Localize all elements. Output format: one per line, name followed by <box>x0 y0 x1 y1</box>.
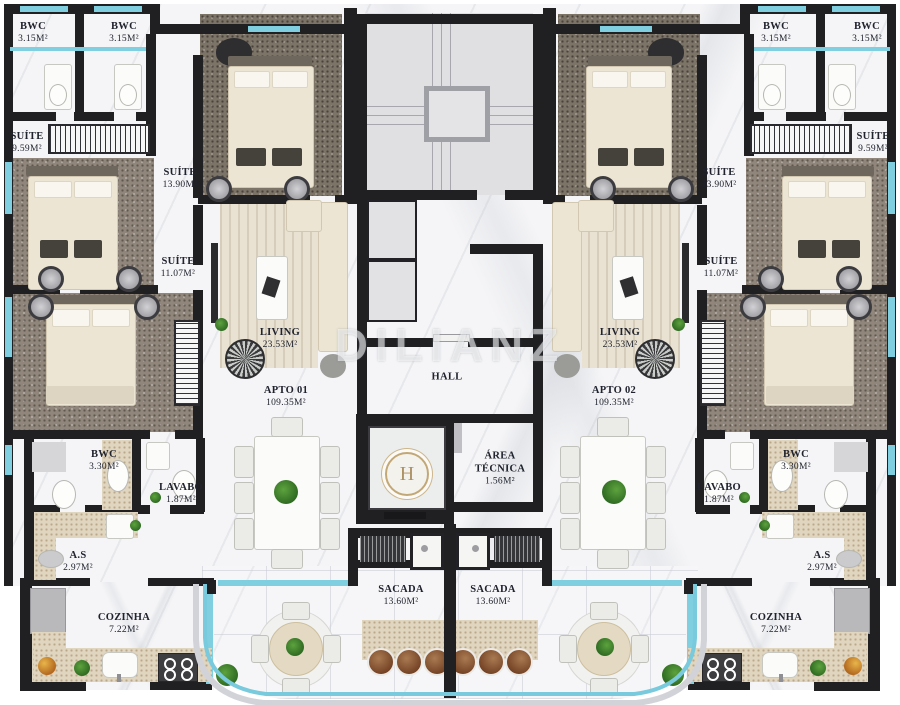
room-label-hall: HALL <box>410 372 484 385</box>
room-label-bwc-top-left-1: BWC3.15M² <box>0 21 70 45</box>
room-label-sacada-right: SACADA13.60M² <box>463 584 523 608</box>
room-label-living-left: LIVING23.53M² <box>243 327 317 351</box>
room-label-as-right: A.S2.97M² <box>785 550 859 574</box>
room-label-bwc-mid-right: BWC3.30M² <box>759 449 833 473</box>
room-label-area-tecnica: ÁREA TÉCNICA1.56M² <box>470 450 530 487</box>
room-label-bwc-mid-left: BWC3.30M² <box>67 449 141 473</box>
room-label-bwc-top-right-2: BWC3.15M² <box>830 21 900 45</box>
room-label-apto-02: APTO 02109.35M² <box>577 385 651 409</box>
room-label-apto-01: APTO 01109.35M² <box>249 385 323 409</box>
room-label-suite-1390-right: SUÍTE13.90M² <box>682 167 756 191</box>
room-label-suite-959-right: SUÍTE9.59M² <box>836 131 900 155</box>
room-label-as-left: A.S2.97M² <box>41 550 115 574</box>
room-label-living-right: LIVING23.53M² <box>583 327 657 351</box>
room-label-lavabo-left: LAVABO1.87M² <box>144 482 218 506</box>
floor-plan: H BWC3.15M²BWC3.15M²BWC3.15M²BWC3.15M²SU… <box>0 0 900 705</box>
room-labels-layer: BWC3.15M²BWC3.15M²BWC3.15M²BWC3.15M²SUÍT… <box>0 0 900 705</box>
room-label-lavabo-right: LAVABO1.87M² <box>682 482 756 506</box>
room-label-suite-1390-left: SUÍTE13.90M² <box>143 167 217 191</box>
room-label-cozinha-right: COZINHA7.22M² <box>739 612 813 636</box>
room-label-suite-959-left: SUÍTE9.59M² <box>0 131 64 155</box>
room-label-bwc-top-left-2: BWC3.15M² <box>87 21 161 45</box>
room-label-suite-1107-left: SUÍTE11.07M² <box>141 256 215 280</box>
room-label-suite-1107-right: SUÍTE11.07M² <box>684 256 758 280</box>
room-label-bwc-top-right-1: BWC3.15M² <box>739 21 813 45</box>
room-label-sacada-left: SACADA13.60M² <box>371 584 431 608</box>
room-label-cozinha-left: COZINHA7.22M² <box>87 612 161 636</box>
